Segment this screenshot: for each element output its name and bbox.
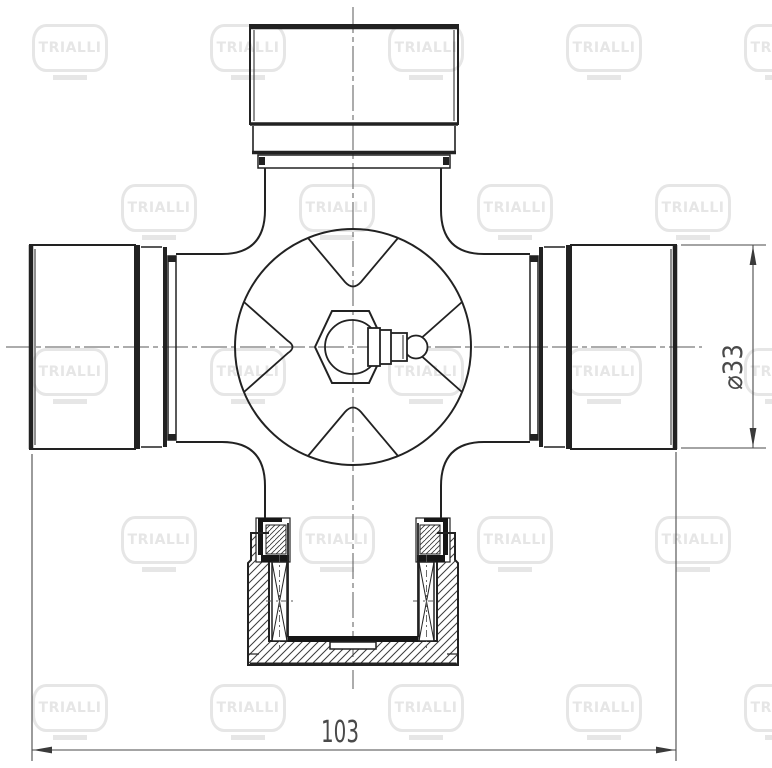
arrowhead-right	[656, 747, 675, 754]
zerk-flange	[368, 328, 380, 366]
trunnion-end-face	[288, 636, 418, 642]
centerlines	[6, 7, 702, 689]
fillet-top-left	[176, 168, 265, 254]
fillet-top-right	[441, 168, 530, 254]
dimension-length: 103	[32, 452, 676, 761]
seal-right	[416, 518, 450, 562]
fillet-bottom-right	[441, 442, 530, 520]
dimension-length-value: 103	[321, 715, 359, 750]
cup-body	[250, 25, 458, 124]
zerk-ball-tip	[405, 336, 428, 359]
arrowhead-top	[750, 246, 757, 265]
dimension-diameter-value: ⌀33	[718, 344, 749, 390]
arrowhead-bottom	[750, 428, 757, 447]
thrust-washer	[330, 642, 376, 649]
cup-lip	[258, 155, 450, 168]
cup-lip	[530, 256, 538, 440]
seal-left	[256, 518, 290, 562]
fillet-bottom-left	[176, 442, 265, 520]
grease-zerk	[368, 328, 428, 366]
drawing-sheet: TRIALLITRIALLITRIALLITRIALLITRIALLITRIAL…	[0, 0, 772, 768]
section-view	[248, 518, 458, 665]
arrowhead-left	[33, 747, 52, 754]
technical-drawing: 103 ⌀33	[0, 0, 772, 768]
cup-lip	[168, 256, 176, 440]
